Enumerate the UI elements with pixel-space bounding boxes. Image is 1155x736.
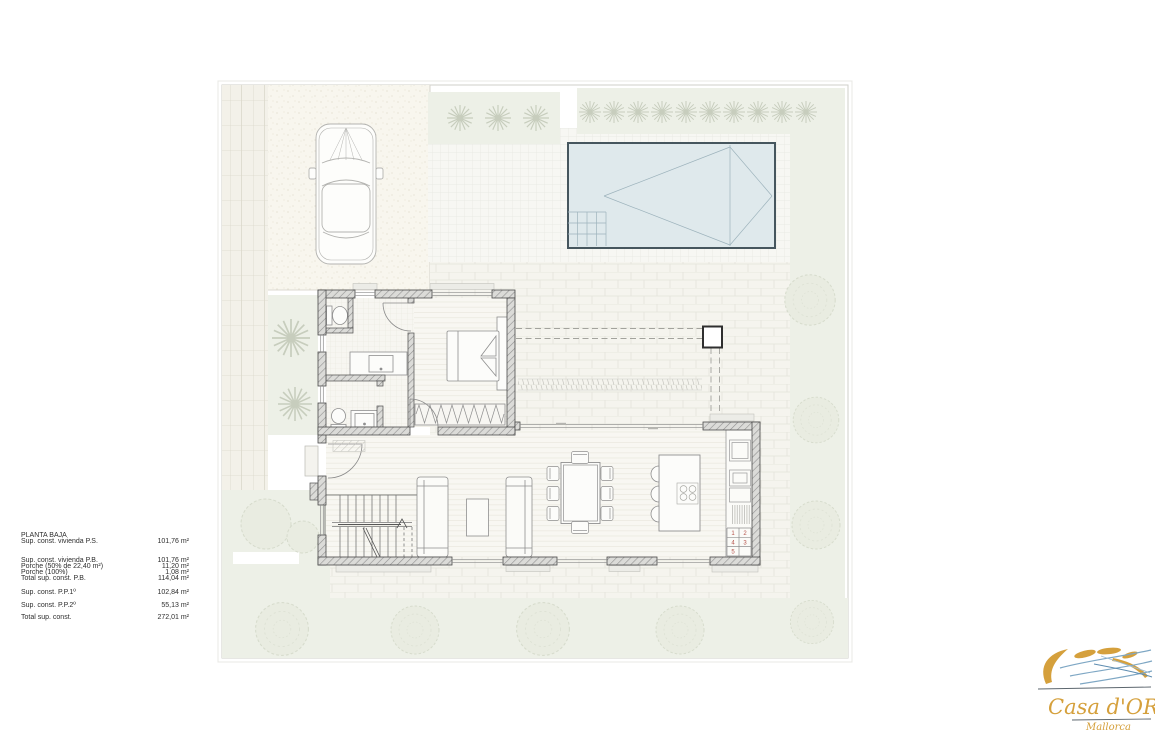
entry-step (305, 446, 318, 476)
dining-chair (547, 507, 559, 521)
area-value: 55,13 m² (161, 603, 189, 609)
dining-chair (572, 452, 589, 464)
porch-column (703, 327, 722, 348)
bush-icon (241, 499, 291, 549)
area-row: Sup. const. vivienda P.S. 101,76 m² (21, 539, 189, 545)
area-row: Total sup. const. 272,01 m² (21, 615, 189, 621)
area-value: 102,84 m² (157, 590, 189, 596)
dining-chair (601, 507, 613, 521)
area-label: Sup. const. vivienda P.S. (21, 539, 98, 545)
dining-chair (601, 487, 613, 501)
car-mirror (376, 168, 383, 179)
paved-path (222, 85, 268, 490)
area-value: 101,76 m² (157, 539, 189, 545)
toilet-icon (332, 409, 346, 424)
area-row: Sup. const. P.P.1º 102,84 m² (21, 590, 189, 596)
kitchen-island (659, 455, 700, 531)
area-label: Total sup. const. P.B. (21, 576, 86, 582)
entry-mat (333, 441, 365, 452)
area-label: Sup. const. P.P.1º (21, 590, 76, 596)
garden-west (268, 295, 318, 435)
swimming-pool (568, 143, 775, 248)
logo-text: Casa d'OR (1048, 695, 1155, 719)
dining-chair (572, 522, 589, 534)
toilet-icon (327, 306, 333, 325)
dining-table (561, 463, 600, 524)
tree-icon (391, 606, 439, 654)
drawing-sheet: 1 2 4 3 5 (0, 0, 1155, 736)
tree-icon (256, 603, 309, 656)
area-row: Sup. const. P.P.2º 55,13 m² (21, 603, 189, 609)
tree-icon (517, 603, 570, 656)
area-label: Total sup. const. (21, 615, 72, 621)
car-icon (309, 124, 383, 264)
dining-chair (547, 487, 559, 501)
sofa (506, 477, 532, 557)
car-mirror (309, 168, 316, 179)
tree-icon (785, 275, 835, 325)
logo: Casa d'OR Mallorca (1038, 647, 1155, 733)
bar-stools (651, 466, 659, 522)
logo-brush-blue (1060, 650, 1152, 684)
site-plan-drawing: 1 2 4 3 5 (0, 0, 1155, 736)
dining-chair (547, 467, 559, 481)
garden-pad (233, 552, 299, 564)
tree-icon (792, 501, 840, 549)
pergola-band (518, 379, 702, 390)
coffee-table (467, 499, 489, 536)
areas-table: PLANTA BAJA Sup. const. vivienda P.S. 10… (21, 533, 189, 622)
logo-subtitle: Mallorca (1085, 722, 1131, 733)
palm-icon (272, 319, 310, 357)
dining-chair (601, 467, 613, 481)
bush-icon (287, 521, 319, 553)
area-value: 114,04 m² (158, 576, 189, 582)
tree-icon (790, 600, 833, 643)
area-label: Sup. const. P.P.2º (21, 603, 76, 609)
drying-rack (731, 505, 751, 524)
tree-icon (656, 606, 704, 654)
garden-east (790, 88, 845, 658)
toilet-icon (333, 307, 348, 325)
area-value: 272,01 m² (157, 615, 189, 621)
area-row: Total sup. const. P.B. 114,04 m² (21, 576, 189, 582)
palm-icon (278, 387, 312, 421)
tree-icon (793, 397, 839, 443)
sofa (417, 477, 448, 557)
